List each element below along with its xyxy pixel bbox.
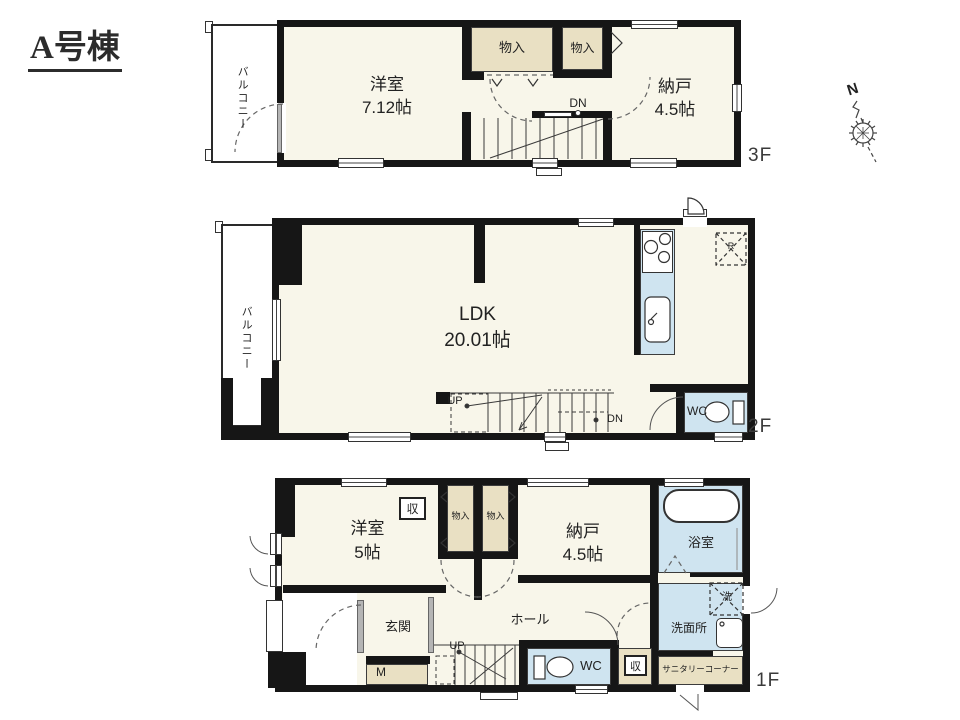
f3-storage-size: 4.5帖	[612, 101, 738, 120]
f1-storage-label: 納戸	[548, 523, 618, 542]
f1-storage-size: 4.5帖	[548, 546, 618, 565]
f2-stairs	[450, 390, 614, 432]
f2-ldk-size: 20.01帖	[410, 331, 545, 352]
f1-floor-label: 1F	[756, 670, 780, 692]
f2-fixtures	[645, 198, 747, 430]
plan-linework	[0, 0, 960, 720]
f2-stairs-dn-label: DN	[600, 413, 630, 425]
f3-storage-label: 納戸	[612, 78, 738, 97]
f1-door-arcs	[316, 556, 686, 651]
f3-floor-label: 3F	[748, 145, 772, 167]
f2-floor-label: 2F	[748, 416, 772, 438]
f1-hall-label: ホール	[496, 613, 564, 627]
f3-stairs-dn-label: DN	[562, 97, 594, 110]
f3-room-size: 7.12帖	[322, 99, 452, 118]
f2-balcony-label: バルコニー	[240, 286, 252, 390]
f1-room-label: 洋室	[315, 520, 420, 539]
f1-closet-label: 物入	[482, 512, 509, 522]
f1-sanitary-label: サニタリーコーナー	[658, 665, 743, 674]
f3-balcony-label: バルコニー	[236, 46, 248, 150]
f2-stairs-up-label: UP	[442, 395, 468, 407]
f1-washroom-label: 洗面所	[660, 622, 718, 635]
f2-wc-label: WC	[686, 405, 708, 418]
f3-stairs	[484, 111, 603, 160]
f1-wc-label: WC	[574, 659, 608, 673]
f3-room-label: 洋室	[322, 76, 452, 95]
f2-fridge-label: R	[722, 242, 740, 252]
f3-closet-label: 物入	[562, 42, 603, 55]
f3-closet-label: 物入	[471, 41, 553, 55]
floor-plan-sheet: A号棟	[0, 0, 960, 720]
f1-closet-label: 物入	[447, 512, 474, 522]
f2-ldk-label: LDK	[410, 305, 545, 326]
f1-meter-label: M	[370, 666, 392, 679]
f1-room-size: 5帖	[315, 544, 420, 563]
f1-bath-label: 浴室	[672, 536, 730, 550]
f1-stairs-up-label: UP	[444, 640, 470, 652]
compass-icon	[849, 101, 877, 162]
f1-entrance-label: 玄関	[372, 620, 424, 634]
f1-laundry-label: 洗	[715, 592, 739, 603]
